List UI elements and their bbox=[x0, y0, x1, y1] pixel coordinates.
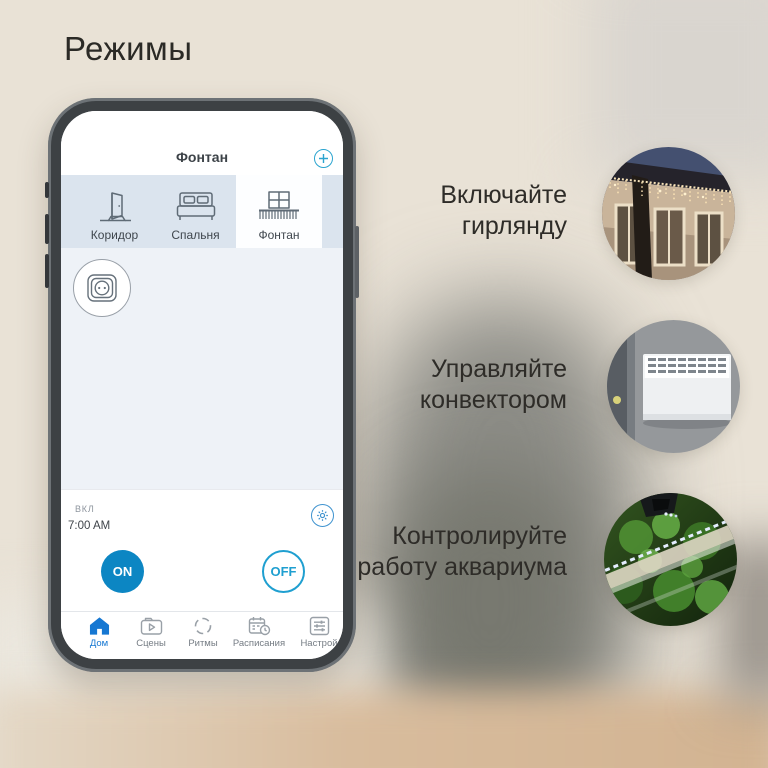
settings-icon bbox=[309, 616, 330, 636]
volume-down-button bbox=[45, 254, 49, 288]
schedule-settings-button[interactable] bbox=[311, 504, 334, 527]
on-button[interactable]: ON bbox=[101, 550, 144, 593]
feature-line: конвектором bbox=[420, 385, 567, 416]
nav-item-scenes[interactable]: Сцены bbox=[121, 616, 181, 649]
phone-screen: Фонтан bbox=[61, 111, 343, 659]
tab-label: Коридор bbox=[91, 228, 138, 242]
power-button bbox=[355, 226, 359, 298]
feature-convector-text: Управляйте конвектором bbox=[420, 354, 567, 416]
mute-switch bbox=[45, 182, 49, 198]
room-tab-bar: Коридор Спальня bbox=[61, 175, 343, 248]
nav-item-home[interactable]: Дом bbox=[69, 616, 129, 649]
poster-canvas: Режимы Фонтан bbox=[0, 0, 768, 768]
devices-area bbox=[61, 248, 343, 489]
tab-fontan[interactable]: Фонтан bbox=[236, 175, 322, 248]
bed-icon bbox=[173, 185, 219, 225]
nav-label: Дом bbox=[90, 638, 108, 649]
background-blur bbox=[0, 690, 768, 768]
app-header: Фонтан bbox=[61, 111, 343, 175]
tab-spalnya[interactable]: Спальня bbox=[155, 175, 236, 248]
schedule-time: 7:00 AM bbox=[68, 520, 110, 532]
status-label: ВКЛ bbox=[75, 504, 95, 514]
feature-line: Контролируйте bbox=[357, 521, 567, 552]
tab-koridor[interactable]: Коридор bbox=[74, 175, 155, 248]
tab-label: Фонтан bbox=[258, 228, 299, 242]
control-panel: ВКЛ 7:00 AM ON OFF bbox=[61, 489, 343, 611]
add-button[interactable] bbox=[314, 149, 333, 168]
balcony-icon bbox=[256, 185, 302, 225]
door-icon bbox=[96, 185, 134, 225]
socket-icon bbox=[86, 273, 118, 303]
feature-line: работу аквариума bbox=[357, 552, 567, 583]
aquarium-photo bbox=[604, 493, 737, 626]
feature-garland-text: Включайте гирлянду bbox=[440, 180, 567, 242]
feature-aquarium-text: Контролируйте работу аквариума bbox=[357, 521, 567, 583]
feature-line: Управляйте bbox=[420, 354, 567, 385]
tab-label: Спальня bbox=[171, 228, 219, 242]
convector-photo bbox=[607, 320, 740, 453]
nav-item-settings[interactable]: Настрой bbox=[289, 616, 343, 649]
socket-device-button[interactable] bbox=[73, 259, 131, 317]
room-title: Фонтан bbox=[61, 149, 343, 165]
nav-label: Сцены bbox=[136, 638, 166, 649]
phone-mockup: Фонтан bbox=[48, 98, 356, 672]
background-blur bbox=[390, 470, 590, 730]
plus-icon bbox=[318, 153, 329, 164]
bottom-nav: Дом Сцены Ритмы bbox=[61, 611, 343, 659]
feature-line: Включайте bbox=[440, 180, 567, 211]
schedules-icon bbox=[248, 616, 271, 636]
feature-line: гирлянду bbox=[440, 211, 567, 242]
garland-photo bbox=[602, 147, 735, 280]
rhythms-icon bbox=[193, 616, 213, 636]
volume-up-button bbox=[45, 214, 49, 244]
nav-label: Ритмы bbox=[188, 638, 217, 649]
nav-label: Настрой bbox=[300, 638, 337, 649]
off-button[interactable]: OFF bbox=[262, 550, 305, 593]
gear-icon bbox=[316, 509, 329, 522]
nav-item-schedules[interactable]: Расписания bbox=[229, 616, 289, 649]
page-title: Режимы bbox=[64, 30, 192, 68]
scenes-icon bbox=[140, 616, 163, 636]
nav-item-rhythms[interactable]: Ритмы bbox=[173, 616, 233, 649]
home-icon bbox=[89, 616, 110, 636]
nav-label: Расписания bbox=[233, 638, 285, 649]
